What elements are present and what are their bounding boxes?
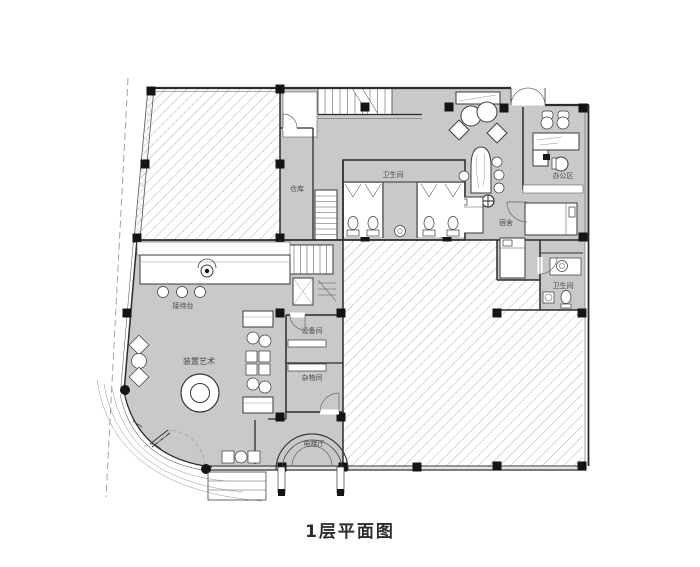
- floor-plan-page: 仓库 卫生间 办公区 宿舍 卫生间 接待台 装置艺术 设备间 杂物间 电梯厅 1…: [0, 0, 700, 567]
- hall-northwest: [137, 88, 280, 240]
- floor-plan-drawing: 仓库 卫生间 办公区 宿舍 卫生间 接待台 装置艺术 设备间 杂物间 电梯厅 1…: [0, 0, 700, 567]
- hall-center: [343, 240, 497, 467]
- lobby-west-chairs: [129, 335, 149, 387]
- art-installation-circle: [181, 374, 219, 412]
- room-label-sundry: 杂物间: [302, 373, 323, 382]
- room-label-dormitory: 宿舍: [499, 218, 513, 227]
- room-label-elevator-hall: 电梯厅: [304, 439, 325, 448]
- fire-hydrant-symbol: [482, 195, 494, 207]
- room-label-equipment: 设备间: [302, 326, 323, 335]
- plan-title: 1层平面图: [305, 522, 395, 542]
- entry-stools: [222, 451, 260, 463]
- room-label-restroom-main: 卫生间: [383, 170, 404, 179]
- room-label-art: 装置艺术: [183, 356, 215, 366]
- exterior-steps: [208, 472, 266, 500]
- room-label-storage: 仓库: [290, 184, 304, 193]
- room-label-reception: 接待台: [173, 301, 194, 310]
- room-label-office: 办公区: [553, 171, 574, 180]
- room-label-restroom-small: 卫生间: [553, 281, 574, 290]
- stair-mid: [315, 190, 337, 240]
